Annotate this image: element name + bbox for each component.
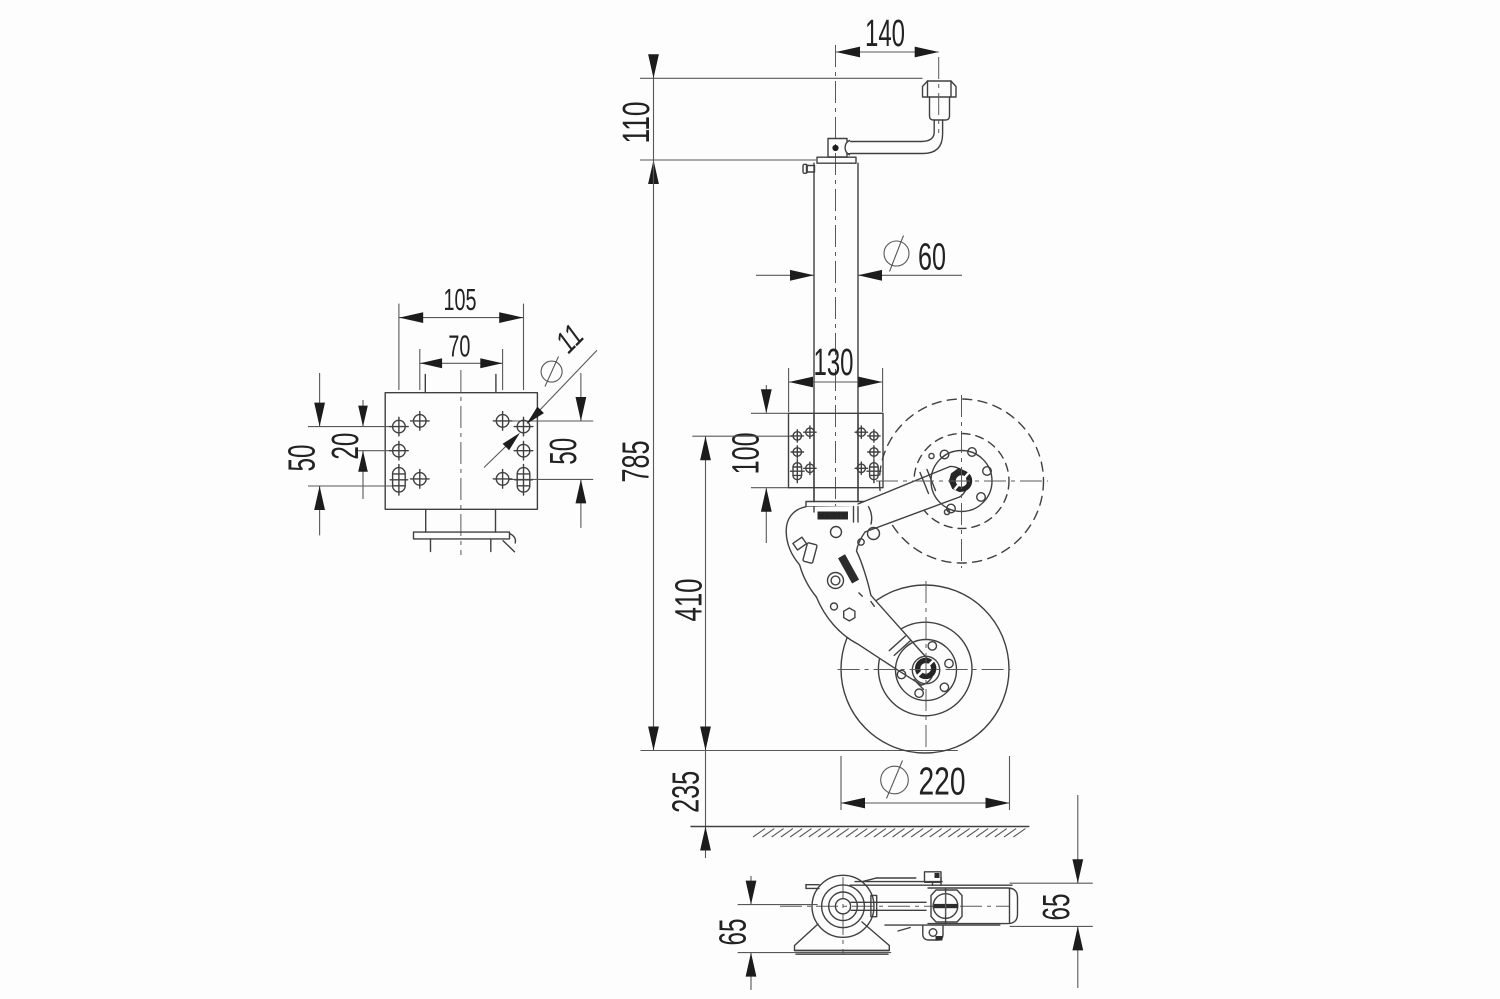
svg-text:130: 130 — [814, 342, 854, 384]
svg-text:50: 50 — [543, 438, 585, 465]
svg-text:20: 20 — [325, 433, 367, 460]
svg-text:KARTT: KARTT — [819, 511, 846, 520]
svg-text:100: 100 — [726, 432, 768, 474]
svg-text:220: 220 — [919, 761, 966, 804]
svg-text:235: 235 — [665, 771, 707, 813]
svg-text:140: 140 — [865, 13, 905, 55]
svg-text:60: 60 — [918, 237, 946, 279]
svg-text:65: 65 — [1036, 894, 1078, 921]
svg-text:110: 110 — [616, 102, 658, 144]
svg-text:70: 70 — [448, 329, 470, 364]
svg-text:50: 50 — [282, 445, 324, 472]
svg-text:410: 410 — [669, 579, 711, 622]
svg-text:105: 105 — [444, 282, 477, 317]
svg-text:65: 65 — [713, 919, 755, 946]
svg-text:785: 785 — [616, 441, 658, 483]
